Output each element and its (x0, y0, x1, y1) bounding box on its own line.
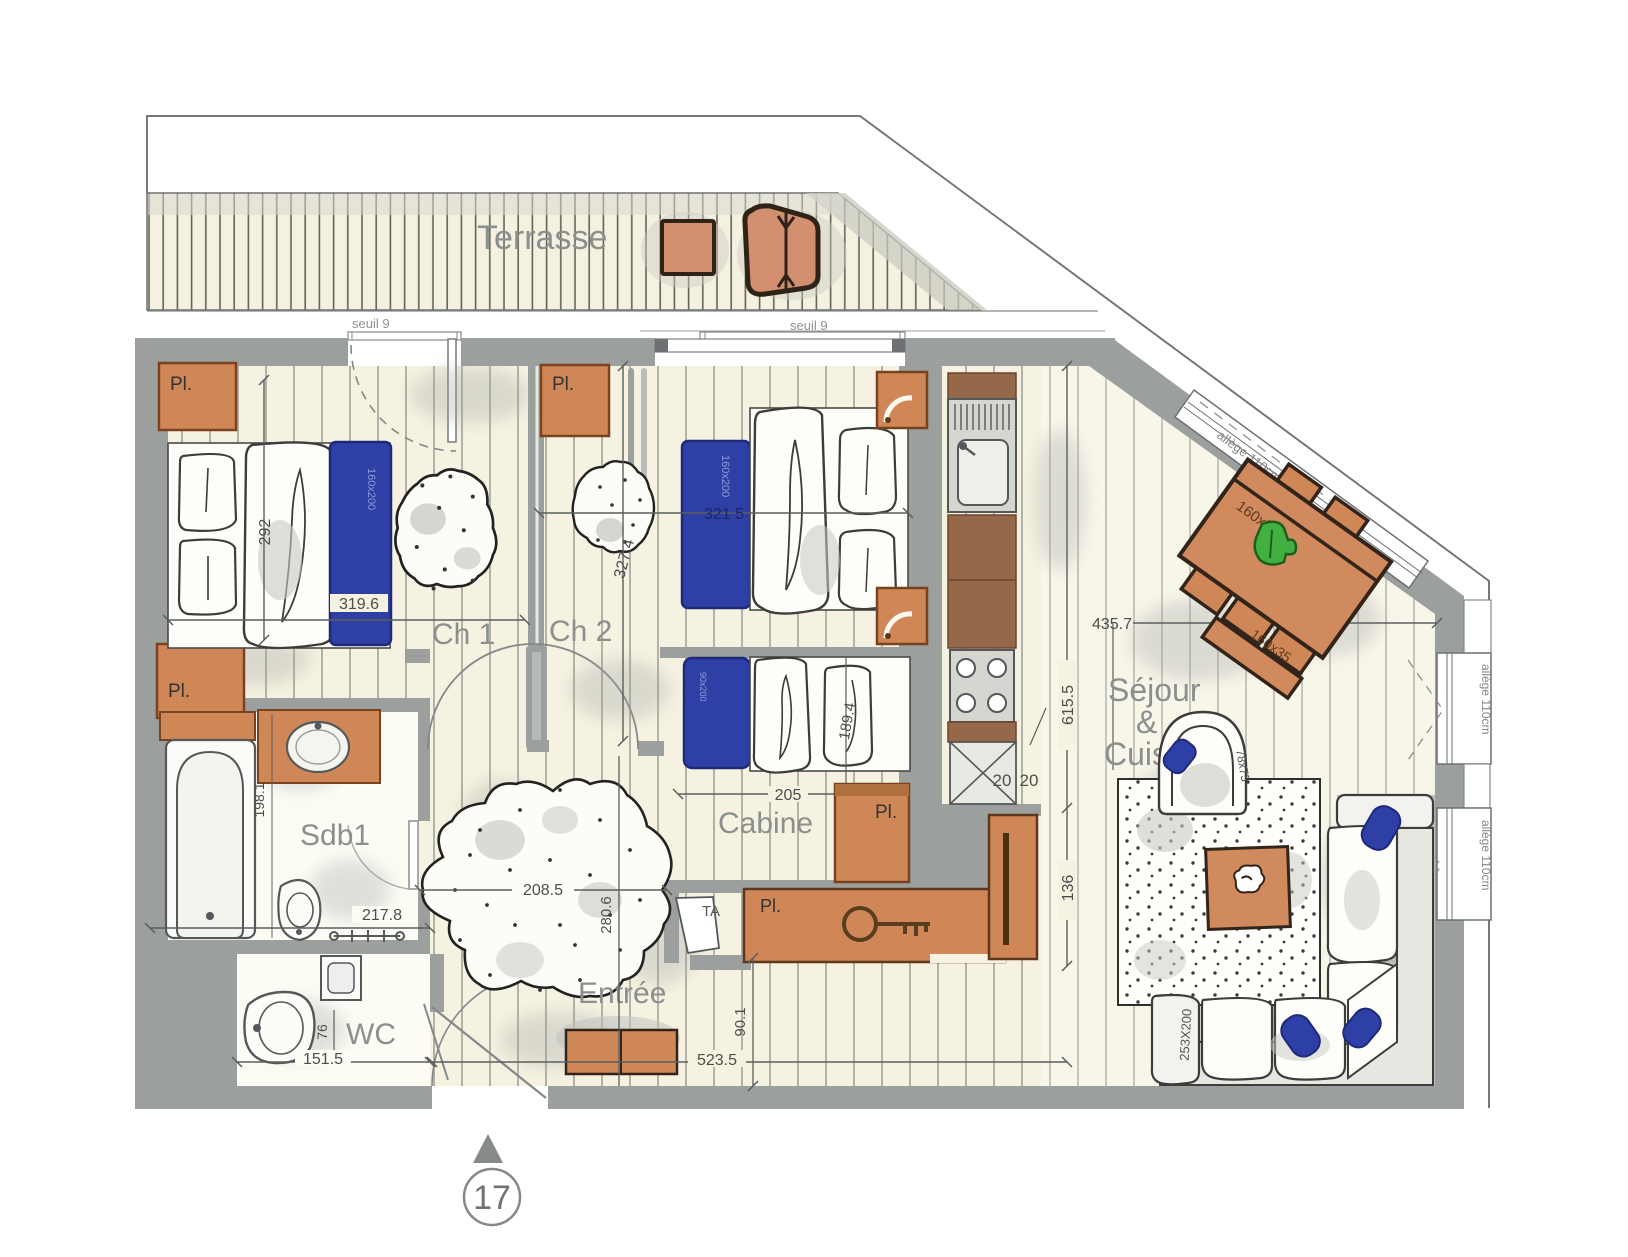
svg-text:&: & (1136, 704, 1157, 740)
svg-text:allège 110cm: allège 110cm (1479, 820, 1493, 891)
svg-text:Pl.: Pl. (552, 374, 574, 395)
svg-text:Terrasse: Terrasse (477, 219, 607, 257)
svg-text:90.1: 90.1 (732, 1007, 749, 1036)
svg-text:Ch 1: Ch 1 (432, 618, 495, 651)
svg-text:20: 20 (993, 771, 1012, 790)
svg-text:90x200: 90x200 (698, 672, 708, 702)
svg-text:allège 110cm: allège 110cm (1479, 664, 1493, 735)
svg-text:151.5: 151.5 (303, 1051, 343, 1068)
svg-text:20: 20 (1020, 771, 1039, 790)
svg-text:435.7: 435.7 (1092, 616, 1132, 633)
svg-text:Ch 2: Ch 2 (549, 615, 612, 648)
svg-text:Sdb1: Sdb1 (300, 819, 370, 852)
svg-text:Pl.: Pl. (760, 896, 781, 916)
svg-text:217.8: 217.8 (362, 907, 402, 924)
svg-text:Cabine: Cabine (718, 807, 813, 840)
svg-text:208.5: 208.5 (523, 882, 563, 899)
svg-text:Séjour: Séjour (1108, 672, 1201, 708)
svg-text:17: 17 (473, 1179, 511, 1217)
svg-text:WC: WC (346, 1018, 396, 1051)
svg-text:523.5: 523.5 (697, 1052, 737, 1069)
svg-text:136: 136 (1060, 875, 1077, 902)
svg-text:76: 76 (314, 1024, 330, 1040)
svg-text:seuil 9: seuil 9 (790, 318, 828, 333)
svg-text:321 5: 321 5 (704, 506, 744, 523)
svg-text:Pl.: Pl. (168, 681, 190, 702)
svg-text:160x200: 160x200 (719, 455, 731, 497)
svg-text:Entrée: Entrée (578, 977, 666, 1010)
svg-text:205: 205 (775, 787, 802, 804)
svg-text:seuil 9: seuil 9 (352, 316, 390, 331)
svg-text:Pl.: Pl. (170, 374, 192, 395)
svg-text:198.1: 198.1 (251, 782, 267, 817)
svg-text:160x200: 160x200 (365, 468, 377, 510)
svg-text:615.5: 615.5 (1060, 685, 1077, 725)
svg-text:Pl.: Pl. (875, 802, 897, 823)
svg-text:292: 292 (257, 519, 274, 546)
svg-text:280.6: 280.6 (598, 896, 615, 934)
svg-text:TA: TA (702, 903, 720, 920)
svg-text:253X200: 253X200 (1177, 1008, 1195, 1061)
svg-text:319.6: 319.6 (339, 596, 379, 613)
